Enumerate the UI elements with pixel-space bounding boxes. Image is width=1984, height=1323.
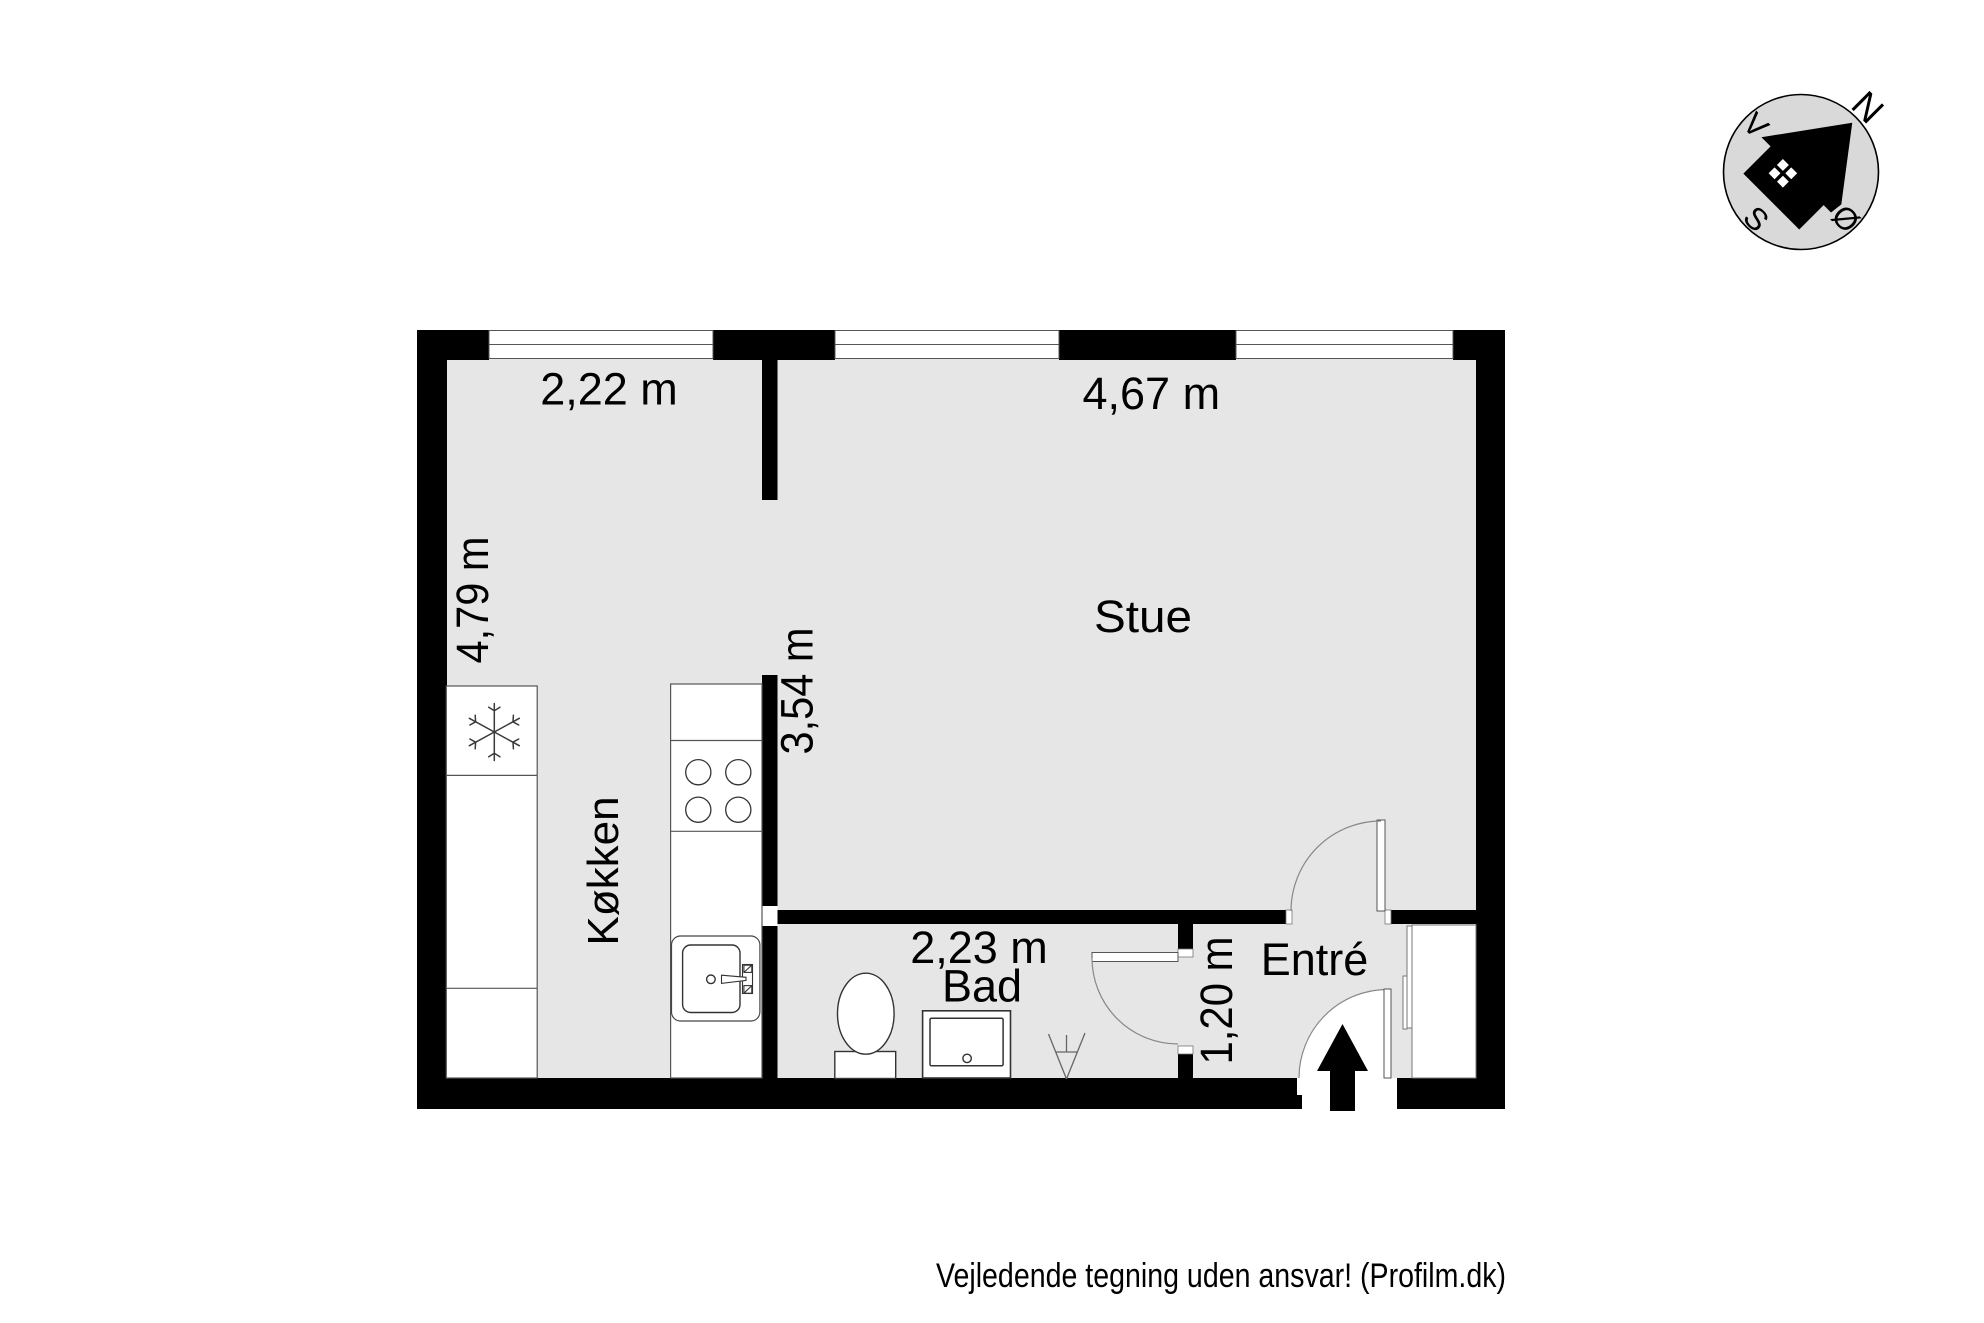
svg-text:4,79 m: 4,79 m — [447, 537, 498, 664]
svg-text:Stue: Stue — [1094, 591, 1192, 642]
svg-text:Entré: Entré — [1261, 934, 1369, 985]
svg-text:3,54 m: 3,54 m — [772, 628, 823, 755]
svg-text:1,20 m: 1,20 m — [1191, 937, 1242, 1065]
svg-text:4,67 m: 4,67 m — [1083, 368, 1221, 419]
svg-text:2,22 m: 2,22 m — [540, 364, 678, 415]
svg-text:Vejledende tegning uden ansvar: Vejledende tegning uden ansvar! (Profilm… — [936, 1257, 1506, 1295]
svg-text:Køkken: Køkken — [579, 796, 628, 945]
svg-text:Bad: Bad — [942, 961, 1022, 1012]
